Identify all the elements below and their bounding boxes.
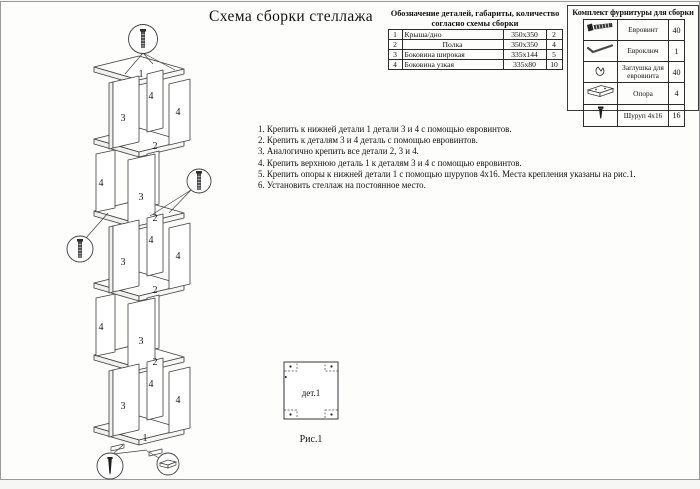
part-num: 2 xyxy=(388,40,402,50)
part-label: 4 xyxy=(176,251,181,262)
parts-table-block: Обозначение деталей, габариты, количеств… xyxy=(385,9,565,70)
figure-part-label: дет.1 xyxy=(302,388,321,398)
instruction-step: 4. Крепить верхнюю деталь 1 к деталям 3 … xyxy=(258,158,698,169)
part-size: 335х80 xyxy=(503,60,546,70)
part-qty: 10 xyxy=(546,60,562,70)
part-label: 2 xyxy=(153,213,158,224)
part-qty: 4 xyxy=(546,40,562,50)
table-row: 4 Боковина узкая 335х80 10 xyxy=(388,60,562,70)
hardware-name: Евровинт xyxy=(618,20,669,41)
cap-icon xyxy=(584,62,618,83)
instructions-list: 1. Крепить к нижней детали 1 детали 3 и … xyxy=(258,124,698,191)
hardware-name: Заглушка для евровинта xyxy=(618,62,669,83)
part-label: 1 xyxy=(139,69,144,80)
parts-table-header-line2: согласно схемы сборки xyxy=(385,19,565,29)
hardware-qty: 1 xyxy=(669,41,685,62)
table-row: Евровинт 40 xyxy=(584,20,685,41)
hardware-qty: 40 xyxy=(669,62,685,83)
support-foot xyxy=(111,444,162,456)
part-size: 350х350 xyxy=(503,40,546,50)
table-row: Евроключ 1 xyxy=(584,41,685,62)
hardware-kit-title: Комплект фурнитуры для сборки xyxy=(568,8,698,17)
part-label: 2 xyxy=(153,357,158,368)
part-num: 4 xyxy=(388,60,402,70)
part-size: 350х350 xyxy=(503,30,546,40)
hardware-name: Опора xyxy=(618,83,669,105)
part-label: 1 xyxy=(143,433,148,444)
parts-table-header-line1: Обозначение деталей, габариты, количеств… xyxy=(385,9,565,19)
hardware-qty: 40 xyxy=(669,20,685,41)
figure-caption: Рис.1 xyxy=(277,434,345,445)
instruction-step: 6. Установить стеллаж на постоянное мест… xyxy=(258,180,698,191)
part-name: Полка xyxy=(402,40,503,50)
instruction-step: 1. Крепить к нижней детали 1 детали 3 и … xyxy=(258,124,698,135)
part-label: 4 xyxy=(99,178,104,189)
part-label: 2 xyxy=(153,285,158,296)
part-num: 3 xyxy=(388,50,402,60)
part-label: 4 xyxy=(99,322,104,333)
part-label: 3 xyxy=(139,336,144,347)
assembly-diagram: 1 4 3 4 2 4 3 2 4 3 4 2 4 3 2 4 3 4 1 xyxy=(49,22,249,485)
table-row: Заглушка для евровинта 40 xyxy=(584,62,685,83)
table-row: 3 Боковина широкая 335х144 5 xyxy=(388,50,562,60)
part-label: 3 xyxy=(121,401,126,412)
part-label: 4 xyxy=(149,91,154,102)
hex-key-icon xyxy=(584,41,618,62)
part-name: Боковина широкая xyxy=(402,50,503,60)
hardware-qty: 4 xyxy=(669,83,685,105)
part-name: Боковина узкая xyxy=(402,60,503,70)
part-qty: 5 xyxy=(546,50,562,60)
document-page: Схема сборки стеллажа Обозначение детале… xyxy=(0,1,700,480)
part-size: 335х144 xyxy=(503,50,546,60)
instruction-step: 5. Крепить опоры к нижней детали 1 с пом… xyxy=(258,169,698,180)
table-row: Опора 4 xyxy=(584,83,685,105)
instruction-step: 3. Аналогично крепить все детали 2, 3 и … xyxy=(258,146,698,157)
part-label: 2 xyxy=(153,141,158,152)
figure-1: дет.1 Рис.1 xyxy=(277,358,345,445)
support-icon xyxy=(584,83,618,105)
part-label: 3 xyxy=(121,113,126,124)
eurovint-icon xyxy=(584,20,618,41)
part-name: Крыша/дно xyxy=(402,30,503,40)
table-row: 2 Полка 350х350 4 xyxy=(388,40,562,50)
part-label: 4 xyxy=(149,379,154,390)
hardware-table: Евровинт 40 Евроключ 1 Заглушка дл xyxy=(583,19,685,127)
table-row: 1 Крыша/дно 350х350 2 xyxy=(388,30,562,40)
part-label: 4 xyxy=(176,107,181,118)
part-label: 4 xyxy=(149,235,154,246)
part-num: 1 xyxy=(388,30,402,40)
part-label: 4 xyxy=(176,395,181,406)
instruction-step: 2. Крепить к деталям 3 и 4 деталь с помо… xyxy=(258,135,698,146)
part-label: 3 xyxy=(121,257,126,268)
part-qty: 2 xyxy=(546,30,562,40)
hardware-kit-block: Комплект фурнитуры для сборки Евровинт xyxy=(567,5,699,111)
part-label: 3 xyxy=(139,192,144,203)
parts-table: 1 Крыша/дно 350х350 2 2 Полка 350х350 4 … xyxy=(388,29,563,70)
hardware-name: Евроключ xyxy=(618,41,669,62)
